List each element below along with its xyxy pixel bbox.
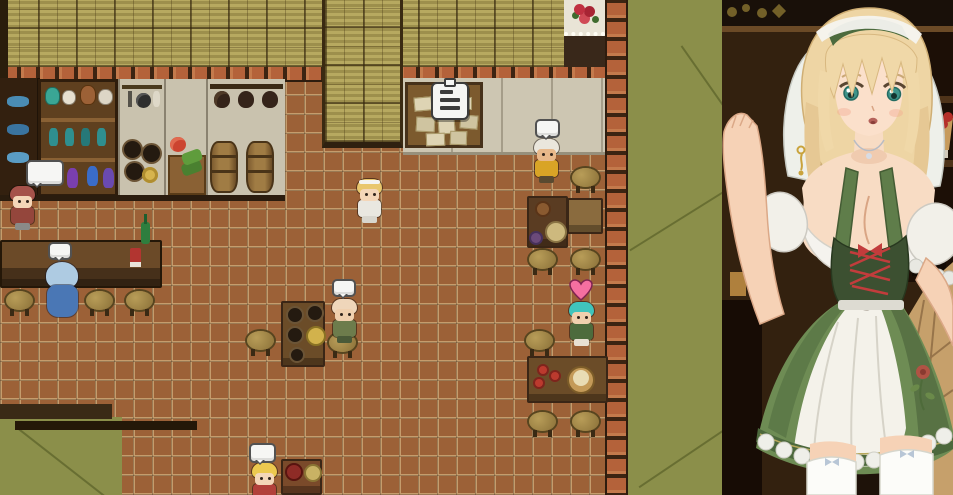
stool-legs: [533, 430, 537, 437]
stool-legs: [533, 268, 537, 275]
table-item: [573, 370, 589, 386]
npc-legs: [539, 176, 554, 183]
table-item: [304, 464, 322, 482]
child-table: [281, 459, 322, 495]
npc-legs: [574, 339, 589, 346]
table-item: [130, 262, 141, 267]
table-item: [289, 347, 305, 363]
table-item: [549, 370, 561, 382]
table-item: [286, 326, 304, 344]
waitress-portrait-art: [722, 0, 953, 495]
npc-face: [255, 473, 274, 485]
stool-seat: [572, 412, 599, 431]
npc-eyes: [340, 313, 343, 316]
map-entities: [0, 0, 722, 495]
npc-body: [358, 200, 381, 217]
speech-bubble-icon: [48, 242, 72, 260]
game-viewport: [0, 0, 722, 495]
bar-counter: [0, 240, 162, 288]
stool: [526, 331, 553, 357]
stool-seat: [529, 412, 556, 431]
speech-bubble-icon: [26, 160, 64, 186]
npc-body: [333, 320, 356, 337]
apple-table: [527, 356, 608, 403]
table-item: [533, 377, 545, 389]
npc-face: [360, 189, 379, 201]
npc-face: [537, 149, 556, 161]
npc-body: [253, 484, 276, 495]
background-furniture: [722, 300, 762, 495]
npc-shopkeeper[interactable]: [8, 186, 38, 232]
npc-robe: [47, 285, 78, 317]
stool: [247, 331, 274, 357]
npc-body: [11, 207, 34, 224]
stool: [529, 250, 556, 276]
npc-cook[interactable]: [532, 139, 562, 185]
stool: [126, 291, 153, 317]
npc-legs: [15, 223, 30, 230]
npc-eyes: [260, 477, 263, 480]
table-item: [529, 231, 543, 245]
stocking: [807, 457, 856, 495]
table-item: [286, 306, 304, 324]
speech-bubble-icon: [249, 443, 276, 463]
stool-seat: [126, 291, 153, 310]
table-item: [535, 201, 551, 217]
stool-legs: [251, 349, 255, 356]
stool-seat: [86, 291, 113, 310]
speech-bubble-icon: [535, 119, 560, 138]
npc-eyes: [18, 200, 21, 203]
npc-eyes: [365, 193, 368, 196]
stool-seat: [572, 168, 599, 187]
npc-face: [13, 196, 32, 208]
stool-legs: [576, 430, 580, 437]
stool-seat: [6, 291, 33, 310]
stool: [572, 412, 599, 438]
table-item: [141, 222, 150, 244]
npc-eyes: [577, 316, 580, 319]
game-screen: [0, 0, 953, 495]
stool-legs: [90, 309, 94, 316]
npc-face: [572, 312, 591, 324]
stool: [572, 168, 599, 194]
npc-waitress-sprite[interactable]: [355, 179, 385, 225]
npc-body: [535, 160, 558, 177]
stool-seat: [247, 331, 274, 350]
waitress-portrait: [722, 0, 953, 495]
npc-body: [570, 323, 593, 340]
stool-legs: [530, 349, 534, 356]
npc-patron-blue[interactable]: [46, 262, 76, 308]
stool-legs: [333, 351, 337, 358]
stool-legs: [130, 309, 134, 316]
table-item: [537, 364, 549, 376]
stool-legs: [10, 309, 14, 316]
stool: [86, 291, 113, 317]
table-item: [306, 304, 324, 322]
stool: [6, 291, 33, 317]
keg-table: [281, 301, 325, 367]
npc-legs: [337, 336, 352, 343]
npc-legs: [362, 216, 377, 223]
npc-child[interactable]: [250, 463, 280, 495]
stocking: [880, 450, 933, 495]
npc-face: [335, 309, 354, 321]
stool: [529, 412, 556, 438]
speech-bubble-icon: [332, 279, 356, 297]
npc-patron-bald[interactable]: [330, 299, 360, 345]
npc-headband: [359, 180, 380, 184]
table-item: [545, 221, 567, 243]
table-item: [285, 463, 303, 481]
stool-legs: [576, 268, 580, 275]
stool-seat: [529, 250, 556, 269]
stool-seat: [572, 250, 599, 269]
table-item: [306, 326, 326, 346]
side-table: [567, 198, 603, 234]
npc-eyes: [542, 153, 545, 156]
heart-icon: [569, 279, 593, 301]
npc-adventurer-teal[interactable]: [567, 302, 597, 348]
stool: [572, 250, 599, 276]
stool-legs: [576, 186, 580, 193]
table-item: [144, 214, 147, 224]
stool-seat: [526, 331, 553, 350]
cook-table: [527, 196, 568, 248]
